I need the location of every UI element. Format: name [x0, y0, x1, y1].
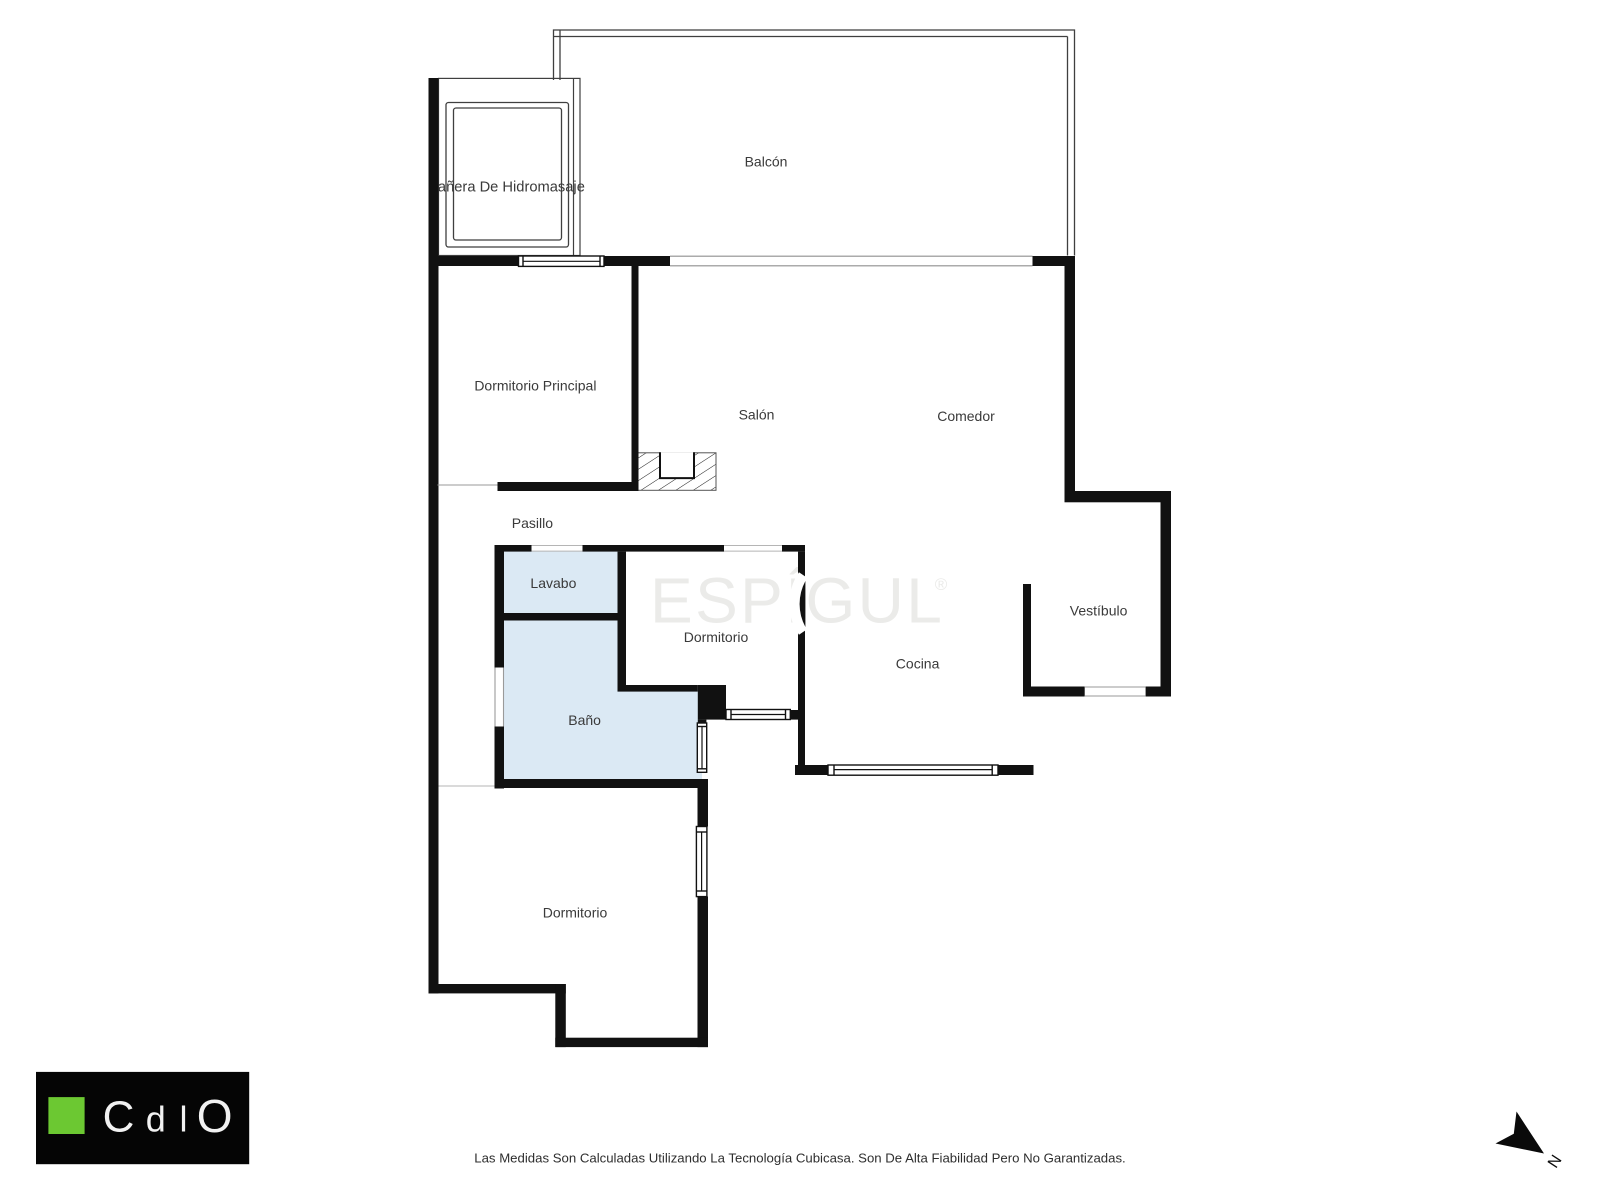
svg-text:Cocina: Cocina — [896, 656, 940, 672]
svg-text:Dormitorio Principal: Dormitorio Principal — [474, 378, 596, 394]
svg-text:Pasillo: Pasillo — [512, 515, 553, 531]
svg-text:Balcón: Balcón — [745, 154, 788, 170]
svg-text:Dormitorio: Dormitorio — [543, 905, 608, 921]
svg-text:d: d — [146, 1099, 166, 1140]
svg-text:Baño: Baño — [568, 712, 601, 728]
svg-text:®: ® — [935, 575, 948, 594]
svg-text:l: l — [180, 1099, 188, 1140]
svg-text:Las Medidas Son Calculadas Uti: Las Medidas Son Calculadas Utilizando La… — [474, 1150, 1125, 1165]
svg-text:N: N — [1543, 1151, 1564, 1170]
svg-text:Lavabo: Lavabo — [530, 575, 576, 591]
svg-text:Comedor: Comedor — [937, 408, 995, 424]
svg-text:Salón: Salón — [739, 407, 775, 423]
svg-text:Vestíbulo: Vestíbulo — [1070, 603, 1128, 619]
svg-text:C: C — [103, 1093, 135, 1142]
svg-text:O: O — [197, 1090, 233, 1142]
svg-text:Dormitorio: Dormitorio — [684, 629, 749, 645]
